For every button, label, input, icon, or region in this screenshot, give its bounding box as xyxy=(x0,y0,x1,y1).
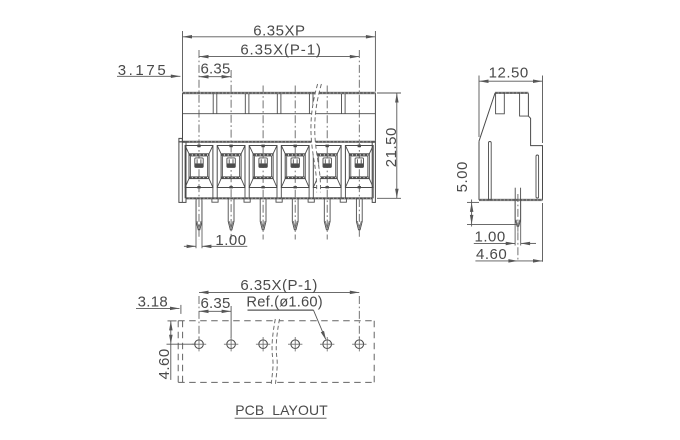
svg-text:4.60: 4.60 xyxy=(156,348,173,379)
svg-text:4.60: 4.60 xyxy=(476,246,507,263)
svg-text:5.00: 5.00 xyxy=(454,161,471,192)
svg-text:6.35: 6.35 xyxy=(201,295,231,312)
svg-text:6.35X(P-1): 6.35X(P-1) xyxy=(240,42,322,59)
svg-text:3.175: 3.175 xyxy=(118,62,169,79)
svg-text:6.35: 6.35 xyxy=(201,61,231,78)
svg-text:12.50: 12.50 xyxy=(489,65,529,82)
svg-text:Ref.(ø1.60): Ref.(ø1.60) xyxy=(246,294,322,310)
svg-text:6.35X(P-1): 6.35X(P-1) xyxy=(240,277,318,294)
svg-text:3.18: 3.18 xyxy=(138,294,168,311)
svg-text:1.00: 1.00 xyxy=(475,229,506,246)
svg-text:21.50: 21.50 xyxy=(383,127,400,167)
svg-text:1.00: 1.00 xyxy=(215,232,246,249)
svg-text:6.35XP: 6.35XP xyxy=(253,22,305,39)
svg-text:PCB LAYOUT: PCB LAYOUT xyxy=(235,402,328,418)
